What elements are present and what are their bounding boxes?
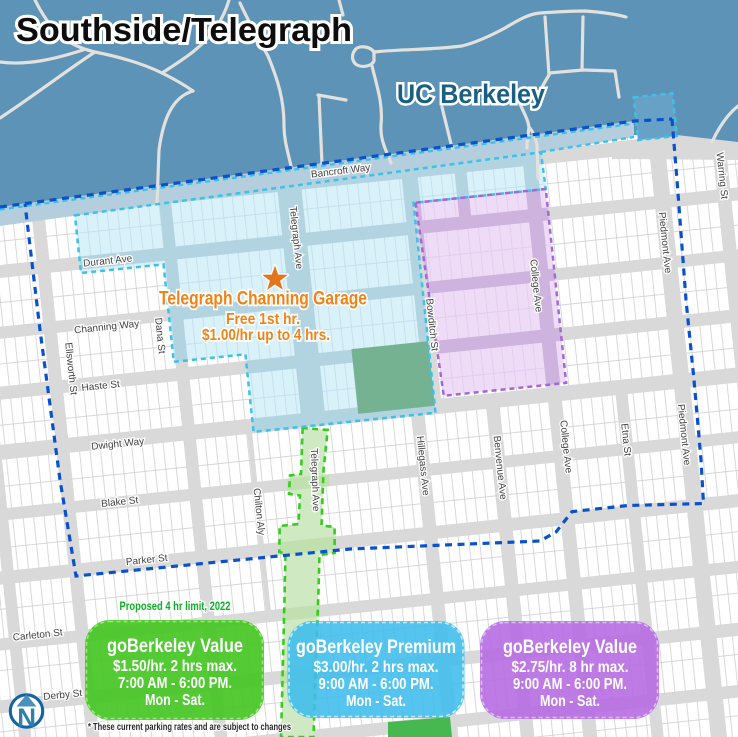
svg-text:Mon - Sat.: Mon - Sat. [346,693,406,710]
svg-text:Mon - Sat.: Mon - Sat. [145,692,205,709]
svg-text:Telegraph Ave: Telegraph Ave [308,448,321,512]
svg-text:7:00 AM - 6:00 PM.: 7:00 AM - 6:00 PM. [118,675,232,692]
svg-text:Mon - Sat.: Mon - Sat. [540,693,600,710]
svg-text:$1.00/hr up to 4 hrs.: $1.00/hr up to 4 hrs. [202,327,330,344]
svg-text:goBerkeley Value: goBerkeley Value [503,636,637,658]
svg-text:Proposed 4 hr limit, 2022: Proposed 4 hr limit, 2022 [120,601,231,613]
svg-text:Southside/Telegraph: Southside/Telegraph [16,11,352,48]
svg-text:N: N [17,703,36,733]
svg-text:* These current parking rates: * These current parking rates and are su… [88,722,291,733]
svg-text:goBerkeley Value: goBerkeley Value [107,635,243,657]
svg-text:goBerkeley Premium: goBerkeley Premium [296,636,456,658]
svg-text:$1.50/hr. 2 hrs max.: $1.50/hr. 2 hrs max. [113,658,237,675]
svg-text:$2.75/hr. 8 hr max.: $2.75/hr. 8 hr max. [512,659,629,676]
svg-text:9:00 AM - 6:00 PM.: 9:00 AM - 6:00 PM. [513,676,627,693]
svg-text:$3.00/hr. 2 hrs max.: $3.00/hr. 2 hrs max. [314,659,439,676]
svg-text:9:00 AM - 6:00 PM.: 9:00 AM - 6:00 PM. [319,676,434,693]
svg-text:UC Berkeley: UC Berkeley [397,79,545,109]
svg-text:Free 1st hr.: Free 1st hr. [226,311,300,328]
svg-text:Telegraph Channing Garage: Telegraph Channing Garage [159,289,367,310]
